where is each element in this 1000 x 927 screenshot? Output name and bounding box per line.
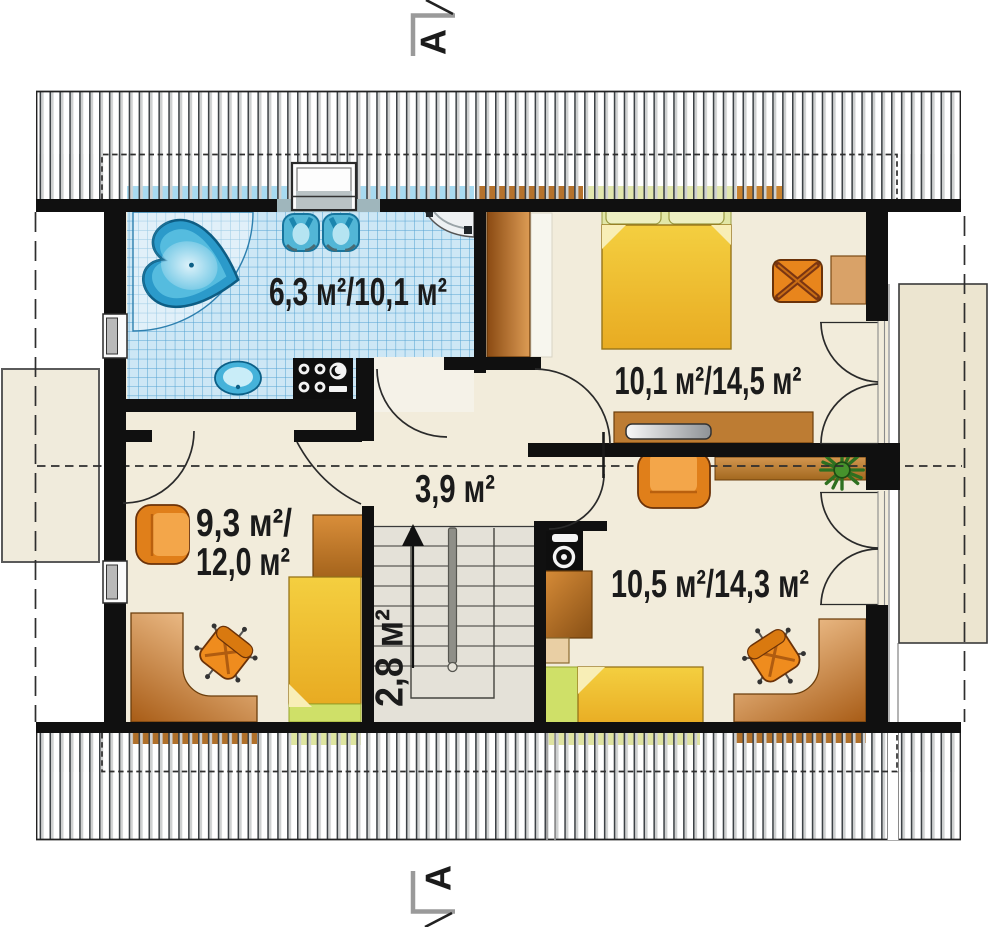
svg-text:12,0 м²: 12,0 м² <box>196 541 290 584</box>
svg-text:6,3 м²/10,1 м²: 6,3 м²/10,1 м² <box>269 271 447 314</box>
svg-text:10,1 м²/14,5 м²: 10,1 м²/14,5 м² <box>615 360 802 403</box>
svg-text:9,3 м²/: 9,3 м²/ <box>196 502 292 545</box>
svg-text:A: A <box>418 865 459 891</box>
svg-text:3,9 м²: 3,9 м² <box>415 468 495 511</box>
svg-text:10,5 м²/14,3 м²: 10,5 м²/14,3 м² <box>611 563 809 606</box>
svg-text:2,8 м²: 2,8 м² <box>369 609 412 707</box>
svg-text:A: A <box>413 29 454 55</box>
